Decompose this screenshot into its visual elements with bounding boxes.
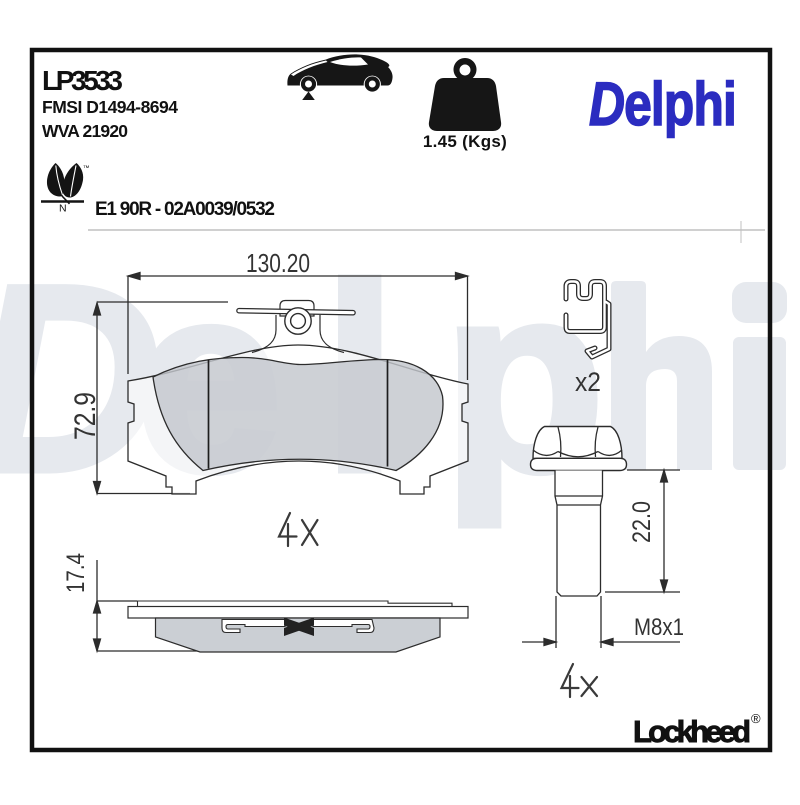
svg-text:LP3533: LP3533 xyxy=(42,65,123,96)
svg-text:FMSI D1494-8694: FMSI D1494-8694 xyxy=(42,97,178,117)
svg-text:M8x1: M8x1 xyxy=(634,614,684,641)
svg-text:1.45 (Kgs): 1.45 (Kgs) xyxy=(423,132,507,151)
svg-text:130.20: 130.20 xyxy=(246,248,310,278)
svg-text:x2: x2 xyxy=(575,367,601,397)
svg-text:™: ™ xyxy=(83,165,90,172)
svg-text:Lockheed: Lockheed xyxy=(633,714,751,749)
svg-text:72.9: 72.9 xyxy=(69,392,102,440)
svg-text:17.4: 17.4 xyxy=(62,553,90,593)
svg-text:®: ® xyxy=(751,711,761,726)
svg-text:Delphi: Delphi xyxy=(589,70,736,138)
svg-text:E1 90R - 02A0039/0532: E1 90R - 02A0039/0532 xyxy=(95,199,275,220)
svg-text:N: N xyxy=(59,203,67,215)
svg-text:WVA 21920: WVA 21920 xyxy=(42,121,128,141)
svg-text:22.0: 22.0 xyxy=(628,501,656,543)
